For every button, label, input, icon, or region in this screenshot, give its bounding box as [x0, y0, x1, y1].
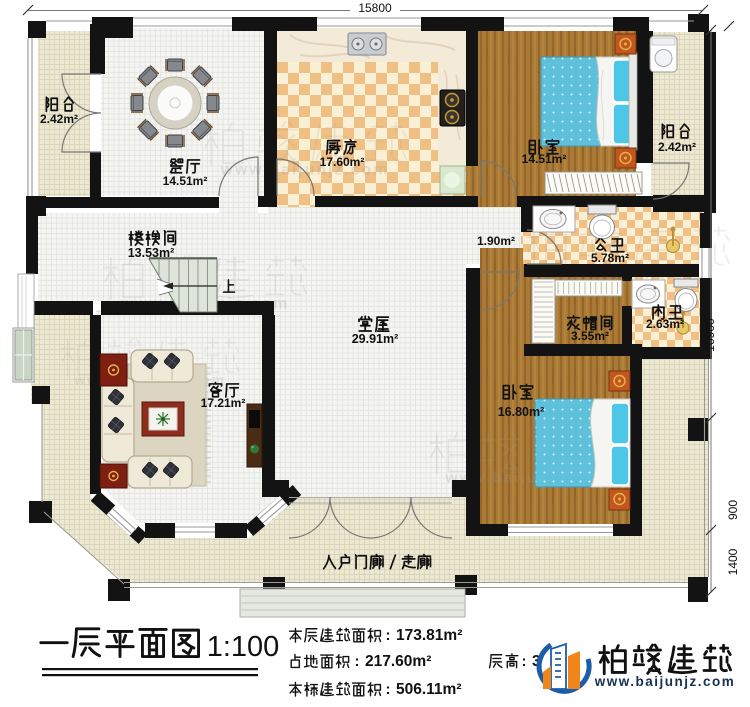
svg-text:1:100: 1:100: [207, 631, 280, 663]
svg-text:14.51m²: 14.51m²: [163, 174, 208, 188]
svg-text::: :: [355, 653, 360, 670]
svg-text:17.60m²: 17.60m²: [320, 155, 365, 169]
svg-text:13.53m²: 13.53m²: [128, 246, 175, 260]
svg-text:2.63m²: 2.63m²: [646, 317, 684, 331]
svg-text:3.55m²: 3.55m²: [571, 329, 609, 343]
svg-text:2.42m²: 2.42m²: [658, 140, 696, 154]
svg-text:14.51m²: 14.51m²: [522, 152, 567, 166]
svg-text::: :: [522, 653, 527, 670]
svg-text:15800: 15800: [358, 1, 392, 15]
svg-text:173.81m²: 173.81m²: [396, 627, 462, 644]
svg-text:1400: 1400: [726, 548, 740, 575]
svg-text:10900: 10900: [703, 318, 717, 352]
svg-text::: :: [386, 627, 391, 644]
svg-text:2.42m²: 2.42m²: [40, 112, 78, 126]
svg-text:5.78m²: 5.78m²: [591, 251, 629, 265]
svg-text:506.11m²: 506.11m²: [396, 681, 462, 698]
svg-text:16.80m²: 16.80m²: [498, 405, 545, 419]
svg-text:900: 900: [726, 500, 740, 520]
svg-text::: :: [386, 681, 391, 698]
svg-text:217.60m²: 217.60m²: [365, 653, 431, 670]
svg-text:17.21m²: 17.21m²: [201, 396, 246, 410]
svg-text:1.90m²: 1.90m²: [477, 234, 515, 248]
svg-text:29.91m²: 29.91m²: [352, 332, 399, 346]
svg-text:www.baijunjz.com: www.baijunjz.com: [594, 674, 736, 689]
